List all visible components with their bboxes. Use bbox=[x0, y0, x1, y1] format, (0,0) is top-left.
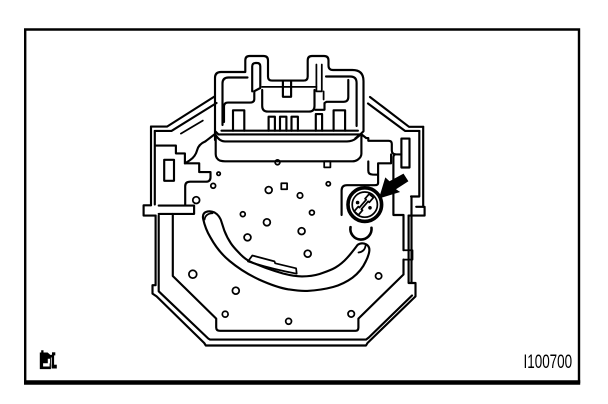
svg-text:I100700: I100700 bbox=[524, 351, 573, 373]
